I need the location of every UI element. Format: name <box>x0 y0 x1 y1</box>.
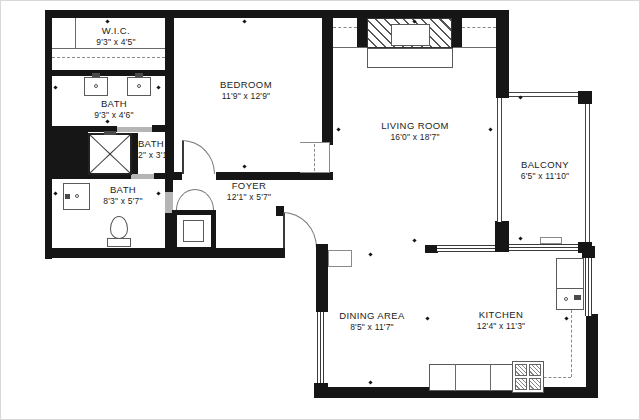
room-name: BALCONY <box>521 159 570 170</box>
fireplace-firebox <box>391 24 430 46</box>
wall-bedroom-bottom-right <box>216 172 333 180</box>
balcony-post-topright <box>578 91 592 104</box>
room-name: BATH <box>131 138 170 149</box>
dimension-tick <box>368 252 372 256</box>
room-name: BATH <box>103 184 142 195</box>
room-dims: 9'3" x 4'5" <box>96 37 135 47</box>
dimension-tick <box>518 95 522 99</box>
kitchen-faucet <box>574 295 581 300</box>
room-name: FOYER <box>227 180 271 191</box>
kitchen-sink-drain <box>564 297 568 301</box>
faucet-right <box>135 73 143 77</box>
room-name: KITCHEN <box>477 309 526 320</box>
stove-burner-4 <box>529 378 541 390</box>
dimension-tick <box>368 380 372 384</box>
dimension-tick <box>105 119 109 123</box>
room-dims: 16'0" x 18'7" <box>381 132 449 142</box>
stove-burner-1 <box>515 364 527 376</box>
kitchen-counter-dash-v <box>571 310 572 377</box>
room-dims: 6'5" x 11'10" <box>521 171 570 181</box>
faucet-left <box>92 73 100 77</box>
wall-kitchen-right <box>586 314 598 392</box>
balcony-rail-left <box>497 98 502 222</box>
room-label-wic: W.I.C. 9'3" x 4'5" <box>96 25 135 47</box>
foyer-closet-unit <box>183 220 204 242</box>
room-dims: 8'5" x 11'7" <box>339 322 405 332</box>
hearth-line-left <box>333 47 367 48</box>
chimney-left <box>357 18 367 48</box>
dimension-tick <box>336 127 340 131</box>
drain-left <box>94 84 98 88</box>
bath3-handle <box>65 194 70 199</box>
counter-divider-1 <box>455 364 456 391</box>
kitchen-window <box>585 258 592 316</box>
room-name: DINING AREA <box>339 310 405 321</box>
fireplace-hearth <box>367 48 453 68</box>
wall-top <box>45 10 509 18</box>
bath3-drain <box>75 194 79 198</box>
drain-right <box>137 84 141 88</box>
bifold-door-right <box>195 189 214 210</box>
room-label-bath-double: BATH 9'3" x 4'6" <box>94 98 133 120</box>
stove-burner-2 <box>529 364 541 376</box>
dimension-tick <box>488 127 492 131</box>
wall-kitchen-right-stub <box>582 246 595 258</box>
kitchen-balcony-window <box>509 244 579 251</box>
counter-divider-2 <box>490 364 491 391</box>
room-dims: 6'2" x 3'1" <box>131 150 170 160</box>
dimension-tick <box>425 316 429 320</box>
bedroom-closet <box>300 142 330 173</box>
ceiling-line-left <box>333 27 357 28</box>
room-dims: 9'3" x 4'6" <box>94 110 133 120</box>
dimension-tick <box>564 316 568 320</box>
wall-mass-left <box>52 131 88 179</box>
bedroom-door <box>182 140 215 174</box>
dimension-tick <box>518 236 522 240</box>
opening-bath1-bath2 <box>117 127 152 132</box>
room-label-dining: DINING AREA 8'5" x 11'7" <box>339 310 405 332</box>
dimension-tick <box>105 19 109 23</box>
stove-burner-3 <box>515 378 527 390</box>
kitchen-counter-right <box>556 258 584 289</box>
dimension-tick <box>412 238 416 242</box>
room-label-balcony: BALCONY 6'5" x 11'10" <box>521 159 570 181</box>
dining-cabinet <box>328 250 352 267</box>
balcony-rail-right <box>585 104 590 244</box>
wic-shelf-line <box>52 48 165 49</box>
kitchen-counter-bottom <box>429 364 515 391</box>
room-dims: 12'4" x 11'3" <box>477 321 526 331</box>
bedroom-closet-rod <box>314 144 315 171</box>
dimension-tick <box>53 191 57 195</box>
room-label-foyer: FOYER 12'1" x 5'7" <box>227 180 271 202</box>
livingroom-window <box>437 245 495 252</box>
room-label-bedroom: BEDROOM 11'9" x 12'9" <box>220 79 272 101</box>
room-label-kitchen: KITCHEN 12'4" x 11'3" <box>477 309 526 331</box>
shower-head <box>104 131 116 135</box>
wall-bedroom-bottom-left <box>165 172 182 180</box>
dimension-tick <box>242 164 246 168</box>
entry-door <box>283 212 317 248</box>
wic-partition-line <box>75 18 76 48</box>
dimension-tick <box>156 85 160 89</box>
wall-wic-bottom <box>52 70 165 76</box>
balcony-post-topleft <box>496 80 509 98</box>
room-label-bath-shower: BATH 6'2" x 3'1" <box>131 138 170 160</box>
room-label-bath-main: BATH 8'3" x 5'7" <box>103 184 142 206</box>
dining-window <box>317 312 324 384</box>
room-dims: 8'3" x 5'7" <box>103 196 142 206</box>
room-name: W.I.C. <box>96 25 135 36</box>
wall-dining-left <box>316 244 328 312</box>
wic-closet-rod <box>52 57 165 58</box>
dimension-tick <box>156 191 160 195</box>
dimension-tick <box>53 85 57 89</box>
room-name: BATH <box>94 98 133 109</box>
opening-bath2-bath3 <box>131 174 154 179</box>
floor-plan: W.I.C. 9'3" x 4'5" BATH 9'3" x 4'6" BEDR… <box>0 0 640 420</box>
room-label-living: LIVING ROOM 16'0" x 18'7" <box>381 120 449 142</box>
toilet-bowl <box>110 216 128 239</box>
foyer-closet <box>172 210 216 252</box>
wall-left <box>45 10 52 259</box>
balcony-step <box>540 237 562 244</box>
bifold-door-left <box>176 189 195 210</box>
hearth-line-right <box>453 47 496 48</box>
shower-stall <box>88 133 132 175</box>
room-dims: 12'1" x 5'7" <box>227 192 271 202</box>
chimney-right <box>452 18 462 48</box>
room-dims: 11'9" x 12'9" <box>220 91 272 101</box>
room-name: LIVING ROOM <box>381 120 449 131</box>
toilet-tank <box>107 238 131 247</box>
wall-bath1-corner <box>152 125 166 132</box>
room-name: BEDROOM <box>220 79 272 90</box>
dimension-tick <box>242 19 246 23</box>
window-post <box>495 221 509 252</box>
wall-bedroom-living <box>322 10 333 145</box>
ceiling-line-right <box>462 27 496 28</box>
